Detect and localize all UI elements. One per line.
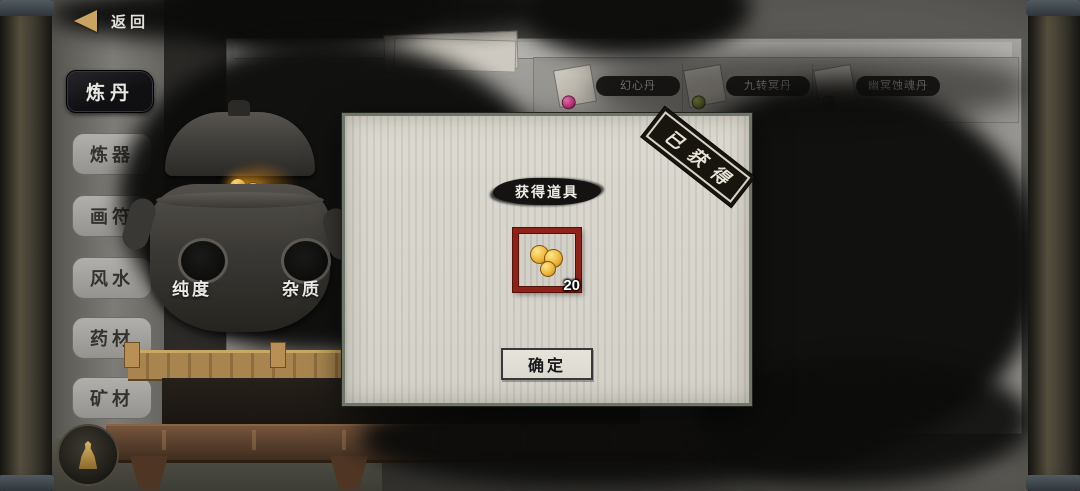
altar-rail-post: [124, 342, 140, 368]
character-avatar-button[interactable]: [57, 424, 119, 486]
roller-cap: [1026, 475, 1080, 491]
dialog-title: 获得道具: [515, 182, 579, 202]
altar-rail-post: [270, 342, 286, 368]
purity-label: 纯度: [172, 275, 212, 300]
back-label: 返回: [111, 11, 149, 32]
back-arrow-icon: [74, 10, 97, 32]
roller-cap: [1026, 0, 1080, 16]
dialog-title-banner: 获得道具: [493, 178, 601, 205]
obtained-stamp-text: 已获得: [652, 117, 744, 197]
item-obtained-dialog: 获得道具 已获得 20 确定: [342, 113, 752, 406]
back-button[interactable]: 返回: [74, 10, 149, 32]
obtained-stamp: 已获得: [641, 107, 754, 207]
roller-cap: [0, 475, 54, 491]
sidebar-tab-ores[interactable]: 矿材: [72, 377, 152, 419]
game-screen: 幻心丹 九转冥丹 幽冥蚀魂丹 炼器 画符 风水 药材 矿材 炼丹 返: [0, 0, 1080, 491]
item-slot[interactable]: 20: [513, 228, 581, 292]
meditating-figure-icon: [77, 441, 99, 469]
scroll-roller-left: [0, 0, 52, 491]
impurity-label: 杂质: [282, 275, 322, 300]
cauldron-lid-knob: [228, 100, 250, 116]
roller-cap: [0, 0, 54, 16]
sidebar-tab-alchemy[interactable]: 炼丹: [66, 70, 154, 113]
cauldron-rim: [156, 192, 324, 208]
confirm-button[interactable]: 确定: [501, 348, 593, 380]
item-count: 20: [563, 277, 580, 294]
pill-dot-icon: [561, 94, 577, 110]
scroll-roller-right: [1028, 0, 1080, 491]
